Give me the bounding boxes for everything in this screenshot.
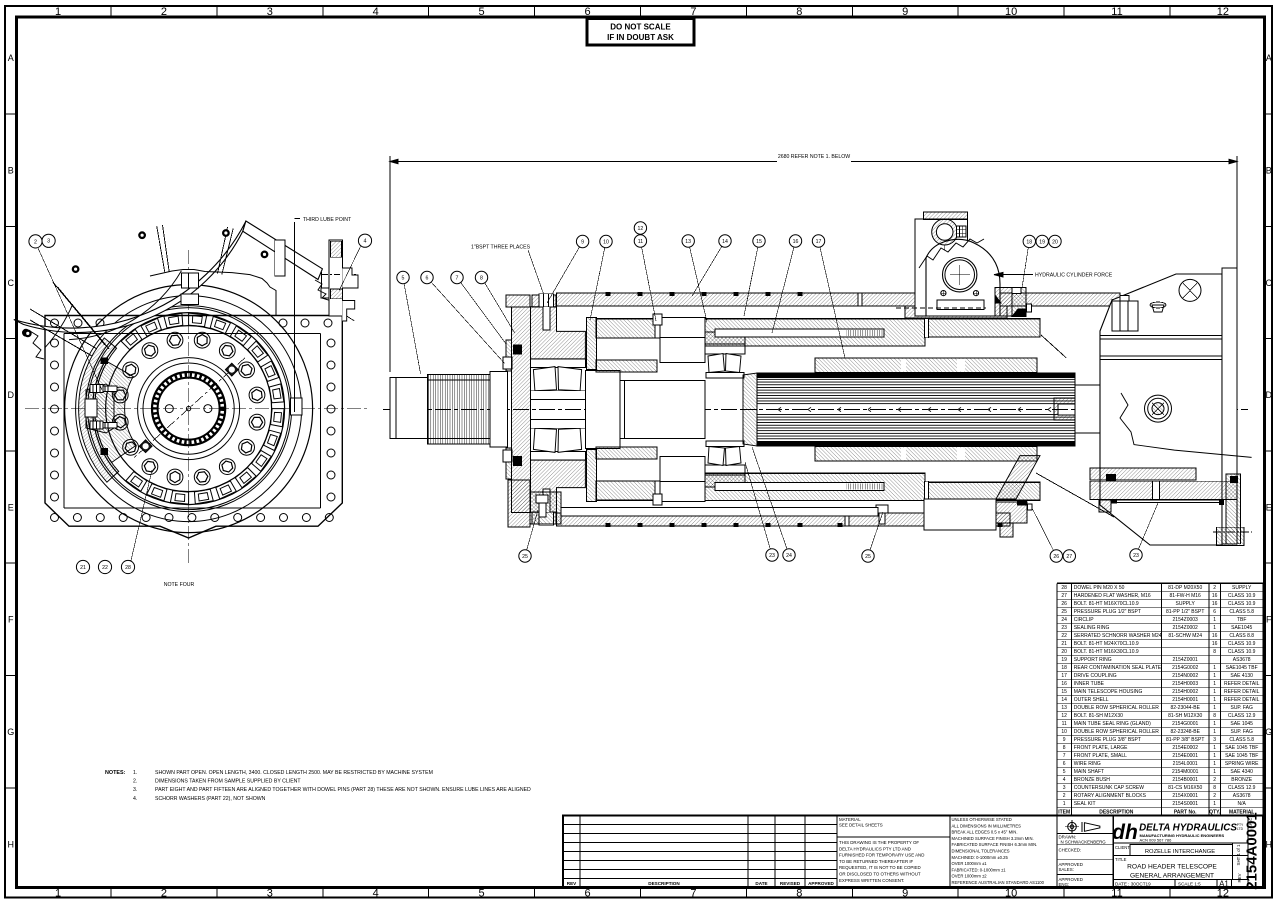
svg-text:DOUBLE ROW SPHERICAL ROLLER: DOUBLE ROW SPHERICAL ROLLER bbox=[1074, 705, 1160, 711]
svg-text:1"BSPT THREE PLACES: 1"BSPT THREE PLACES bbox=[471, 245, 531, 251]
svg-text:NOTE FOUR: NOTE FOUR bbox=[164, 582, 195, 588]
svg-text:19: 19 bbox=[1039, 239, 1045, 245]
svg-text:1: 1 bbox=[1213, 769, 1216, 775]
svg-text:25: 25 bbox=[1061, 609, 1067, 615]
svg-text:SAE 1045 TBF: SAE 1045 TBF bbox=[1225, 753, 1258, 759]
svg-text:SAE 4340: SAE 4340 bbox=[1230, 769, 1253, 775]
svg-text:SAE 4130: SAE 4130 bbox=[1230, 673, 1253, 679]
svg-text:CLASS 5.8: CLASS 5.8 bbox=[1229, 609, 1254, 615]
svg-text:DATE : 30OCT19: DATE : 30OCT19 bbox=[1115, 882, 1151, 887]
svg-text:SEE DETAIL SHEETS: SEE DETAIL SHEETS bbox=[839, 823, 883, 828]
svg-text:1: 1 bbox=[1213, 697, 1216, 703]
svg-text:4.: 4. bbox=[133, 796, 137, 802]
svg-text:13: 13 bbox=[685, 239, 691, 245]
svg-text:17: 17 bbox=[1061, 673, 1067, 679]
svg-text:4: 4 bbox=[373, 888, 379, 899]
svg-text:BOLT. 81-HT M16X70CL10.9: BOLT. 81-HT M16X70CL10.9 bbox=[1074, 601, 1139, 607]
svg-text:CLASS 12.9: CLASS 12.9 bbox=[1228, 785, 1256, 791]
svg-text:dh: dh bbox=[1112, 821, 1138, 844]
svg-text:3: 3 bbox=[267, 888, 273, 899]
svg-text:16: 16 bbox=[1212, 601, 1218, 607]
svg-text:ACN 009 567 786: ACN 009 567 786 bbox=[1140, 838, 1173, 843]
svg-text:SUPPLY: SUPPLY bbox=[1232, 585, 1252, 591]
svg-text:C: C bbox=[8, 278, 15, 288]
svg-text:SUP. FAG: SUP. FAG bbox=[1230, 729, 1253, 735]
svg-text:1: 1 bbox=[1213, 721, 1216, 727]
svg-text:ROTARY ALIGNMENT BLOCKS: ROTARY ALIGNMENT BLOCKS bbox=[1074, 793, 1147, 799]
svg-text:81-PP 3/8" BSPT: 81-PP 3/8" BSPT bbox=[1166, 737, 1204, 743]
svg-text:2154Z0002: 2154Z0002 bbox=[1173, 625, 1199, 631]
svg-text:8: 8 bbox=[796, 888, 802, 899]
svg-text:8: 8 bbox=[1213, 649, 1216, 655]
svg-text:6: 6 bbox=[1213, 609, 1216, 615]
svg-text:MATERIAL: MATERIAL bbox=[839, 817, 861, 822]
svg-text:1: 1 bbox=[55, 6, 61, 18]
svg-text:DESCRIPTION: DESCRIPTION bbox=[1099, 809, 1134, 815]
svg-text:N SCHWACKENBERG: N SCHWACKENBERG bbox=[1061, 839, 1107, 844]
svg-text:D: D bbox=[1266, 390, 1273, 400]
svg-text:1: 1 bbox=[1213, 681, 1216, 687]
svg-text:16: 16 bbox=[1061, 681, 1067, 687]
svg-text:AS3678: AS3678 bbox=[1233, 657, 1251, 663]
svg-text:5: 5 bbox=[479, 888, 485, 899]
svg-text:QTY.: QTY. bbox=[1209, 809, 1221, 815]
svg-text:SALES:: SALES: bbox=[1059, 867, 1074, 872]
svg-text:FABRICATED: 0-1000mm ±1: FABRICATED: 0-1000mm ±1 bbox=[952, 867, 1007, 872]
svg-text:23: 23 bbox=[1061, 625, 1067, 631]
svg-text:DOUBLE ROW SPHERICAL ROLLER: DOUBLE ROW SPHERICAL ROLLER bbox=[1074, 729, 1160, 735]
svg-text:EXPRESS WRITTEN CONSENT.: EXPRESS WRITTEN CONSENT. bbox=[839, 878, 904, 883]
svg-text:9: 9 bbox=[902, 888, 908, 899]
svg-text:REAR CONTAMINATION SEAL PLATE: REAR CONTAMINATION SEAL PLATE bbox=[1074, 665, 1162, 671]
svg-text:GENERAL ARRANGEMENT: GENERAL ARRANGEMENT bbox=[1130, 872, 1214, 879]
svg-text:7: 7 bbox=[690, 6, 696, 18]
svg-text:THIS DRAWING IS THE PROPERTY O: THIS DRAWING IS THE PROPERTY OF bbox=[839, 840, 919, 845]
svg-text:1: 1 bbox=[1213, 729, 1216, 735]
svg-text:MACHINED: 0-1000mm ±0.25: MACHINED: 0-1000mm ±0.25 bbox=[952, 855, 1009, 860]
svg-text:REQUESTED, IT IS NOT TO BE COP: REQUESTED, IT IS NOT TO BE COPIED bbox=[839, 865, 921, 870]
svg-text:21: 21 bbox=[80, 565, 86, 571]
svg-text:ITEM: ITEM bbox=[1058, 809, 1070, 815]
svg-text:FRONT PLATE, LARGE: FRONT PLATE, LARGE bbox=[1074, 745, 1128, 751]
svg-text:OUTER SHELL: OUTER SHELL bbox=[1074, 697, 1109, 703]
svg-text:DRIVE COUPLING: DRIVE COUPLING bbox=[1074, 673, 1117, 679]
svg-text:2154E0001: 2154E0001 bbox=[1172, 753, 1198, 759]
svg-text:SUPPORT RING: SUPPORT RING bbox=[1074, 657, 1112, 663]
svg-text:3: 3 bbox=[47, 239, 50, 245]
svg-text:11: 11 bbox=[1111, 888, 1122, 899]
svg-text:82-23044-BE: 82-23044-BE bbox=[1170, 705, 1200, 711]
svg-text:E: E bbox=[1266, 502, 1272, 512]
svg-text:A: A bbox=[8, 53, 14, 63]
svg-text:17: 17 bbox=[816, 239, 822, 245]
svg-text:18: 18 bbox=[1061, 665, 1067, 671]
svg-text:81-CS M16X50: 81-CS M16X50 bbox=[1168, 785, 1202, 791]
svg-text:CLASS 10.9: CLASS 10.9 bbox=[1228, 593, 1256, 599]
svg-text:DO NOT SCALE: DO NOT SCALE bbox=[610, 23, 671, 32]
svg-text:SAE 1045: SAE 1045 bbox=[1230, 721, 1253, 727]
svg-text:24: 24 bbox=[786, 553, 792, 559]
svg-text:81-DP M20X50: 81-DP M20X50 bbox=[1168, 585, 1202, 591]
svg-text:25: 25 bbox=[522, 554, 528, 560]
svg-text:DATE: DATE bbox=[755, 881, 767, 886]
svg-text:1.: 1. bbox=[133, 770, 137, 776]
svg-text:ROAD HEADER TELESCOPE: ROAD HEADER TELESCOPE bbox=[1127, 863, 1217, 870]
svg-text:2154M0001: 2154M0001 bbox=[1172, 769, 1199, 775]
svg-text:SERRATED SCHNORR WASHER M24: SERRATED SCHNORR WASHER M24 bbox=[1074, 633, 1162, 639]
svg-text:DIMENSIONAL TOLERANCES: DIMENSIONAL TOLERANCES bbox=[952, 849, 1010, 854]
svg-text:AS3678: AS3678 bbox=[1233, 793, 1251, 799]
svg-text:D: D bbox=[8, 390, 15, 400]
svg-text:5: 5 bbox=[402, 275, 405, 281]
svg-text:28: 28 bbox=[125, 565, 131, 571]
svg-text:4: 4 bbox=[373, 6, 379, 18]
svg-text:DELTA HYDRAULICS: DELTA HYDRAULICS bbox=[1139, 823, 1237, 834]
svg-text:16: 16 bbox=[1212, 593, 1218, 599]
svg-text:23: 23 bbox=[769, 553, 775, 559]
svg-text:INNER TUBE: INNER TUBE bbox=[1074, 681, 1105, 687]
svg-text:SAE1045: SAE1045 bbox=[1231, 625, 1252, 631]
svg-text:22: 22 bbox=[1061, 633, 1067, 639]
svg-text:8: 8 bbox=[1213, 785, 1216, 791]
svg-text:G: G bbox=[7, 727, 14, 737]
svg-text:SUP. FAG: SUP. FAG bbox=[1230, 705, 1253, 711]
svg-text:2: 2 bbox=[34, 239, 37, 245]
svg-text:UNLESS OTHERWISE STATED: UNLESS OTHERWISE STATED bbox=[952, 817, 1012, 822]
svg-text:CLASS 12.9: CLASS 12.9 bbox=[1228, 713, 1256, 719]
svg-text:N/A: N/A bbox=[1238, 801, 1247, 807]
svg-text:PRESSURE PLUG 1/2" BSPT: PRESSURE PLUG 1/2" BSPT bbox=[1074, 609, 1141, 615]
svg-text:2154Z0001: 2154Z0001 bbox=[1173, 657, 1199, 663]
svg-text:2: 2 bbox=[161, 888, 167, 899]
svg-text:1: 1 bbox=[1213, 665, 1216, 671]
svg-text:81-SCHW M24: 81-SCHW M24 bbox=[1168, 633, 1202, 639]
svg-text:8: 8 bbox=[796, 6, 802, 18]
svg-text:COUNTERSUNK CAP SCREW: COUNTERSUNK CAP SCREW bbox=[1074, 785, 1144, 791]
svg-text:CLASS 5.8: CLASS 5.8 bbox=[1229, 737, 1254, 743]
svg-text:27: 27 bbox=[1061, 593, 1067, 599]
svg-text:25: 25 bbox=[865, 554, 871, 560]
svg-text:23: 23 bbox=[1133, 553, 1139, 559]
svg-text:SEALING RING: SEALING RING bbox=[1074, 625, 1110, 631]
svg-text:10: 10 bbox=[1061, 729, 1067, 735]
svg-text:IF IN DOUBT ASK: IF IN DOUBT ASK bbox=[607, 33, 674, 42]
svg-text:2680 REFER NOTE 1. BELOW: 2680 REFER NOTE 1. BELOW bbox=[778, 154, 850, 160]
svg-text:12: 12 bbox=[1061, 713, 1067, 719]
svg-text:SCHORR WASHERS (PART 22), NOT: SCHORR WASHERS (PART 22), NOT SHOWN bbox=[155, 796, 266, 802]
svg-text:9: 9 bbox=[1063, 737, 1066, 743]
svg-text:PART EIGHT AND PART FIFTEEN AR: PART EIGHT AND PART FIFTEEN ARE ALIGNED … bbox=[155, 787, 531, 793]
svg-text:5: 5 bbox=[479, 6, 485, 18]
svg-text:FABRICATED SURFACE FINISH 6.3m: FABRICATED SURFACE FINISH 6.3mm MIN. bbox=[952, 842, 1038, 847]
svg-text:MAIN SHAFT: MAIN SHAFT bbox=[1074, 769, 1104, 775]
svg-text:REV: REV bbox=[567, 881, 577, 886]
svg-text:8: 8 bbox=[480, 275, 483, 281]
svg-text:20: 20 bbox=[1061, 649, 1067, 655]
svg-text:BRONZE BUSH: BRONZE BUSH bbox=[1074, 777, 1111, 783]
svg-text:1: 1 bbox=[55, 888, 61, 899]
svg-text:13: 13 bbox=[1061, 705, 1067, 711]
svg-text:OR DISCLOSED TO OTHERS WITHOUT: OR DISCLOSED TO OTHERS WITHOUT bbox=[839, 872, 921, 877]
svg-text:12: 12 bbox=[638, 226, 644, 232]
svg-text:7: 7 bbox=[456, 275, 459, 281]
svg-text:F: F bbox=[8, 615, 14, 625]
svg-text:BOLT. 81-HT M16X30CL10.9: BOLT. 81-HT M16X30CL10.9 bbox=[1074, 649, 1139, 655]
svg-text:A1: A1 bbox=[1219, 880, 1229, 889]
svg-text:ENG:: ENG: bbox=[1059, 882, 1070, 887]
svg-text:82-23248-BE: 82-23248-BE bbox=[1170, 729, 1200, 735]
svg-text:CLIENT: CLIENT bbox=[1115, 845, 1130, 850]
svg-text:CLASS 10.9: CLASS 10.9 bbox=[1228, 601, 1256, 607]
svg-text:TBF: TBF bbox=[1237, 617, 1246, 623]
svg-text:1: 1 bbox=[1213, 625, 1216, 631]
svg-text:FRONT PLATE, SMALL: FRONT PLATE, SMALL bbox=[1074, 753, 1127, 759]
svg-text:SCALE 1:5: SCALE 1:5 bbox=[1178, 882, 1201, 887]
svg-text:OVER 1000mm ±1: OVER 1000mm ±1 bbox=[952, 861, 988, 866]
svg-text:PRESSURE PLUG 3/8" BSPT: PRESSURE PLUG 3/8" BSPT bbox=[1074, 737, 1141, 743]
svg-text:81-FW-H M16: 81-FW-H M16 bbox=[1170, 593, 1202, 599]
svg-text:6: 6 bbox=[1063, 761, 1066, 767]
svg-text:OVER 1000mm ±2: OVER 1000mm ±2 bbox=[952, 874, 988, 879]
svg-text:DELTA HYDRAULICS PTY LTD AND: DELTA HYDRAULICS PTY LTD AND bbox=[839, 846, 911, 851]
svg-text:15: 15 bbox=[1061, 689, 1067, 695]
svg-text:2154L0001: 2154L0001 bbox=[1173, 761, 1198, 767]
svg-text:G: G bbox=[1265, 727, 1272, 737]
svg-text:6: 6 bbox=[584, 888, 590, 899]
svg-text:81-PP 1/2" BSPT: 81-PP 1/2" BSPT bbox=[1166, 609, 1204, 615]
svg-text:2: 2 bbox=[1213, 585, 1216, 591]
svg-text:C: C bbox=[1266, 278, 1273, 288]
svg-text:NOTES:: NOTES: bbox=[105, 770, 126, 776]
svg-text:2154H0002: 2154H0002 bbox=[1172, 689, 1198, 695]
svg-text:16: 16 bbox=[1212, 641, 1218, 647]
svg-text:20: 20 bbox=[1052, 239, 1058, 245]
svg-text:FURNISHED FOR TEMPORARY USE AN: FURNISHED FOR TEMPORARY USE AND bbox=[839, 853, 924, 858]
svg-text:15: 15 bbox=[756, 239, 762, 245]
svg-text:SAE 1045 TBF: SAE 1045 TBF bbox=[1225, 745, 1258, 751]
svg-text:19: 19 bbox=[1061, 657, 1067, 663]
svg-text:ALL DIMENSIONS IN MILLIMETRES: ALL DIMENSIONS IN MILLIMETRES bbox=[952, 823, 1022, 828]
svg-text:MACHINED SURFACE FINISH 3.2mm: MACHINED SURFACE FINISH 3.2mm MIN. bbox=[952, 836, 1034, 841]
svg-text:TITLE: TITLE bbox=[1115, 857, 1127, 862]
svg-text:2: 2 bbox=[1213, 793, 1216, 799]
svg-text:CIRCLIP: CIRCLIP bbox=[1074, 617, 1094, 623]
svg-text:3: 3 bbox=[1213, 737, 1216, 743]
svg-text:4: 4 bbox=[1063, 777, 1066, 783]
svg-text:24: 24 bbox=[1061, 617, 1067, 623]
svg-text:THIRD LUBE POINT: THIRD LUBE POINT bbox=[303, 217, 352, 223]
svg-text:2: 2 bbox=[1213, 777, 1216, 783]
svg-text:2154Z0003: 2154Z0003 bbox=[1173, 617, 1199, 623]
svg-text:HYDRAULIC CYLINDER FORCE: HYDRAULIC CYLINDER FORCE bbox=[1035, 273, 1113, 279]
svg-text:2154G0001: 2154G0001 bbox=[1172, 721, 1198, 727]
svg-text:12: 12 bbox=[1217, 888, 1229, 899]
svg-text:SEAL KIT: SEAL KIT bbox=[1074, 801, 1096, 807]
svg-text:2154N0002: 2154N0002 bbox=[1172, 673, 1198, 679]
svg-text:14: 14 bbox=[1061, 697, 1067, 703]
svg-text:DIMENSIONS TAKEN FROM SAMPLE S: DIMENSIONS TAKEN FROM SAMPLE SUPPLIED BY… bbox=[155, 779, 301, 785]
svg-text:HARDENED FLAT WASHER, M16: HARDENED FLAT WASHER, M16 bbox=[1074, 593, 1151, 599]
svg-text:10: 10 bbox=[1005, 6, 1017, 18]
svg-text:F: F bbox=[1266, 615, 1272, 625]
svg-text:A: A bbox=[1266, 53, 1272, 63]
svg-text:2154S0001: 2154S0001 bbox=[1172, 801, 1198, 807]
svg-text:3.: 3. bbox=[133, 787, 137, 793]
svg-text:1: 1 bbox=[1213, 761, 1216, 767]
svg-text:2154G0002: 2154G0002 bbox=[1172, 665, 1198, 671]
svg-text:CHECKED:: CHECKED: bbox=[1059, 848, 1082, 853]
svg-text:16: 16 bbox=[1212, 633, 1218, 639]
svg-text:8: 8 bbox=[1063, 745, 1066, 751]
svg-text:1: 1 bbox=[1213, 689, 1216, 695]
svg-text:BRONZE: BRONZE bbox=[1231, 777, 1253, 783]
svg-text:SPEC No.: SPEC No. bbox=[1249, 811, 1253, 827]
svg-text:8: 8 bbox=[1213, 713, 1216, 719]
svg-text:11: 11 bbox=[1062, 721, 1067, 727]
svg-text:CLASS 8.8: CLASS 8.8 bbox=[1229, 633, 1254, 639]
svg-text:SUPPLY: SUPPLY bbox=[1176, 601, 1196, 607]
svg-text:26: 26 bbox=[1053, 554, 1059, 560]
svg-text:E: E bbox=[8, 502, 14, 512]
svg-text:B: B bbox=[8, 166, 14, 176]
svg-text:REV: REV bbox=[1237, 873, 1242, 882]
svg-text:1: 1 bbox=[1213, 801, 1216, 807]
svg-text:DESCRIPTION: DESCRIPTION bbox=[648, 881, 680, 886]
svg-text:3: 3 bbox=[267, 6, 273, 18]
svg-text:REVISED: REVISED bbox=[780, 881, 801, 886]
svg-text:REFER DETAIL: REFER DETAIL bbox=[1224, 681, 1260, 687]
svg-text:1: 1 bbox=[1213, 617, 1216, 623]
svg-text:1: 1 bbox=[1213, 705, 1216, 711]
svg-text:MAIN TUBE SEAL RING (GLAND): MAIN TUBE SEAL RING (GLAND) bbox=[1074, 721, 1151, 727]
svg-text:9: 9 bbox=[902, 6, 908, 18]
svg-text:BOLT. 81-SH M12X30: BOLT. 81-SH M12X30 bbox=[1074, 713, 1123, 719]
svg-text:5: 5 bbox=[1063, 769, 1066, 775]
svg-text:H: H bbox=[8, 839, 15, 849]
svg-text:2154X0001: 2154X0001 bbox=[1172, 793, 1198, 799]
svg-text:2154H0003: 2154H0003 bbox=[1172, 681, 1198, 687]
svg-text:7: 7 bbox=[1063, 753, 1066, 759]
svg-text:22: 22 bbox=[102, 565, 108, 571]
svg-text:28: 28 bbox=[1061, 585, 1067, 591]
svg-text:ROZELLE INTERCHANGE: ROZELLE INTERCHANGE bbox=[1145, 849, 1215, 855]
svg-text:REFER DETAIL: REFER DETAIL bbox=[1224, 689, 1260, 695]
svg-text:3: 3 bbox=[1063, 785, 1066, 791]
svg-text:16: 16 bbox=[793, 239, 799, 245]
svg-text:BOLT. 81-HT M24X70CL10.9: BOLT. 81-HT M24X70CL10.9 bbox=[1074, 641, 1139, 647]
svg-text:DOWEL PIN M20 X 50: DOWEL PIN M20 X 50 bbox=[1074, 585, 1125, 591]
svg-text:B: B bbox=[1266, 166, 1272, 176]
svg-text:14: 14 bbox=[722, 239, 728, 245]
svg-text:26: 26 bbox=[1061, 601, 1067, 607]
svg-text:H: H bbox=[1266, 839, 1273, 849]
svg-text:1: 1 bbox=[1213, 673, 1216, 679]
svg-text:81-SH M12X30: 81-SH M12X30 bbox=[1168, 713, 1202, 719]
svg-text:SHT 1 of 1: SHT 1 of 1 bbox=[1236, 844, 1241, 865]
svg-text:2.: 2. bbox=[133, 779, 137, 785]
svg-text:27: 27 bbox=[1066, 554, 1072, 560]
svg-text:6: 6 bbox=[584, 6, 590, 18]
svg-text:18: 18 bbox=[1026, 239, 1032, 245]
svg-text:21: 21 bbox=[1061, 641, 1067, 647]
svg-text:WIRE RING: WIRE RING bbox=[1074, 761, 1101, 767]
svg-text:7: 7 bbox=[690, 888, 696, 899]
svg-text:REFERENCE AUSTRALIAN STANDARD: REFERENCE AUSTRALIAN STANDARD AS1100 bbox=[952, 880, 1045, 885]
svg-text:BREAK ALL EDGES 0.5 x 45° MIN.: BREAK ALL EDGES 0.5 x 45° MIN. bbox=[952, 830, 1018, 835]
svg-text:1: 1 bbox=[1213, 745, 1216, 751]
svg-text:11: 11 bbox=[638, 239, 643, 245]
svg-text:12: 12 bbox=[1217, 6, 1229, 18]
svg-text:SAE1045 TBF: SAE1045 TBF bbox=[1226, 665, 1258, 671]
svg-text:10: 10 bbox=[1005, 888, 1017, 899]
svg-text:2154B0001: 2154B0001 bbox=[1172, 777, 1198, 783]
svg-text:1: 1 bbox=[1063, 801, 1066, 807]
svg-text:REFER DETAIL: REFER DETAIL bbox=[1224, 697, 1260, 703]
svg-text:2154H0001: 2154H0001 bbox=[1172, 697, 1198, 703]
svg-text:6: 6 bbox=[426, 275, 429, 281]
svg-text:MAIN TELESCOPE HOUSING: MAIN TELESCOPE HOUSING bbox=[1074, 689, 1143, 695]
svg-text:TO BE RETURNED THEREAFTER IF: TO BE RETURNED THEREAFTER IF bbox=[839, 859, 914, 864]
svg-text:SPRING WIRE: SPRING WIRE bbox=[1225, 761, 1259, 767]
svg-text:2: 2 bbox=[161, 6, 167, 18]
svg-text:2154E0002: 2154E0002 bbox=[1172, 745, 1198, 751]
svg-text:APPROVED: APPROVED bbox=[808, 881, 834, 886]
svg-text:SHOWN PART OPEN. OPEN LENGTH,: SHOWN PART OPEN. OPEN LENGTH, 3400. CLOS… bbox=[155, 770, 433, 776]
svg-text:9: 9 bbox=[581, 239, 584, 245]
svg-text:11: 11 bbox=[1111, 6, 1122, 18]
svg-text:1: 1 bbox=[1213, 753, 1216, 759]
svg-text:PART No.: PART No. bbox=[1174, 809, 1197, 815]
svg-text:4: 4 bbox=[364, 239, 367, 245]
svg-text:CLASS 10.9: CLASS 10.9 bbox=[1228, 641, 1256, 647]
svg-text:CLASS 10.9: CLASS 10.9 bbox=[1228, 649, 1256, 655]
svg-text:2: 2 bbox=[1063, 793, 1066, 799]
svg-text:10: 10 bbox=[603, 239, 609, 245]
